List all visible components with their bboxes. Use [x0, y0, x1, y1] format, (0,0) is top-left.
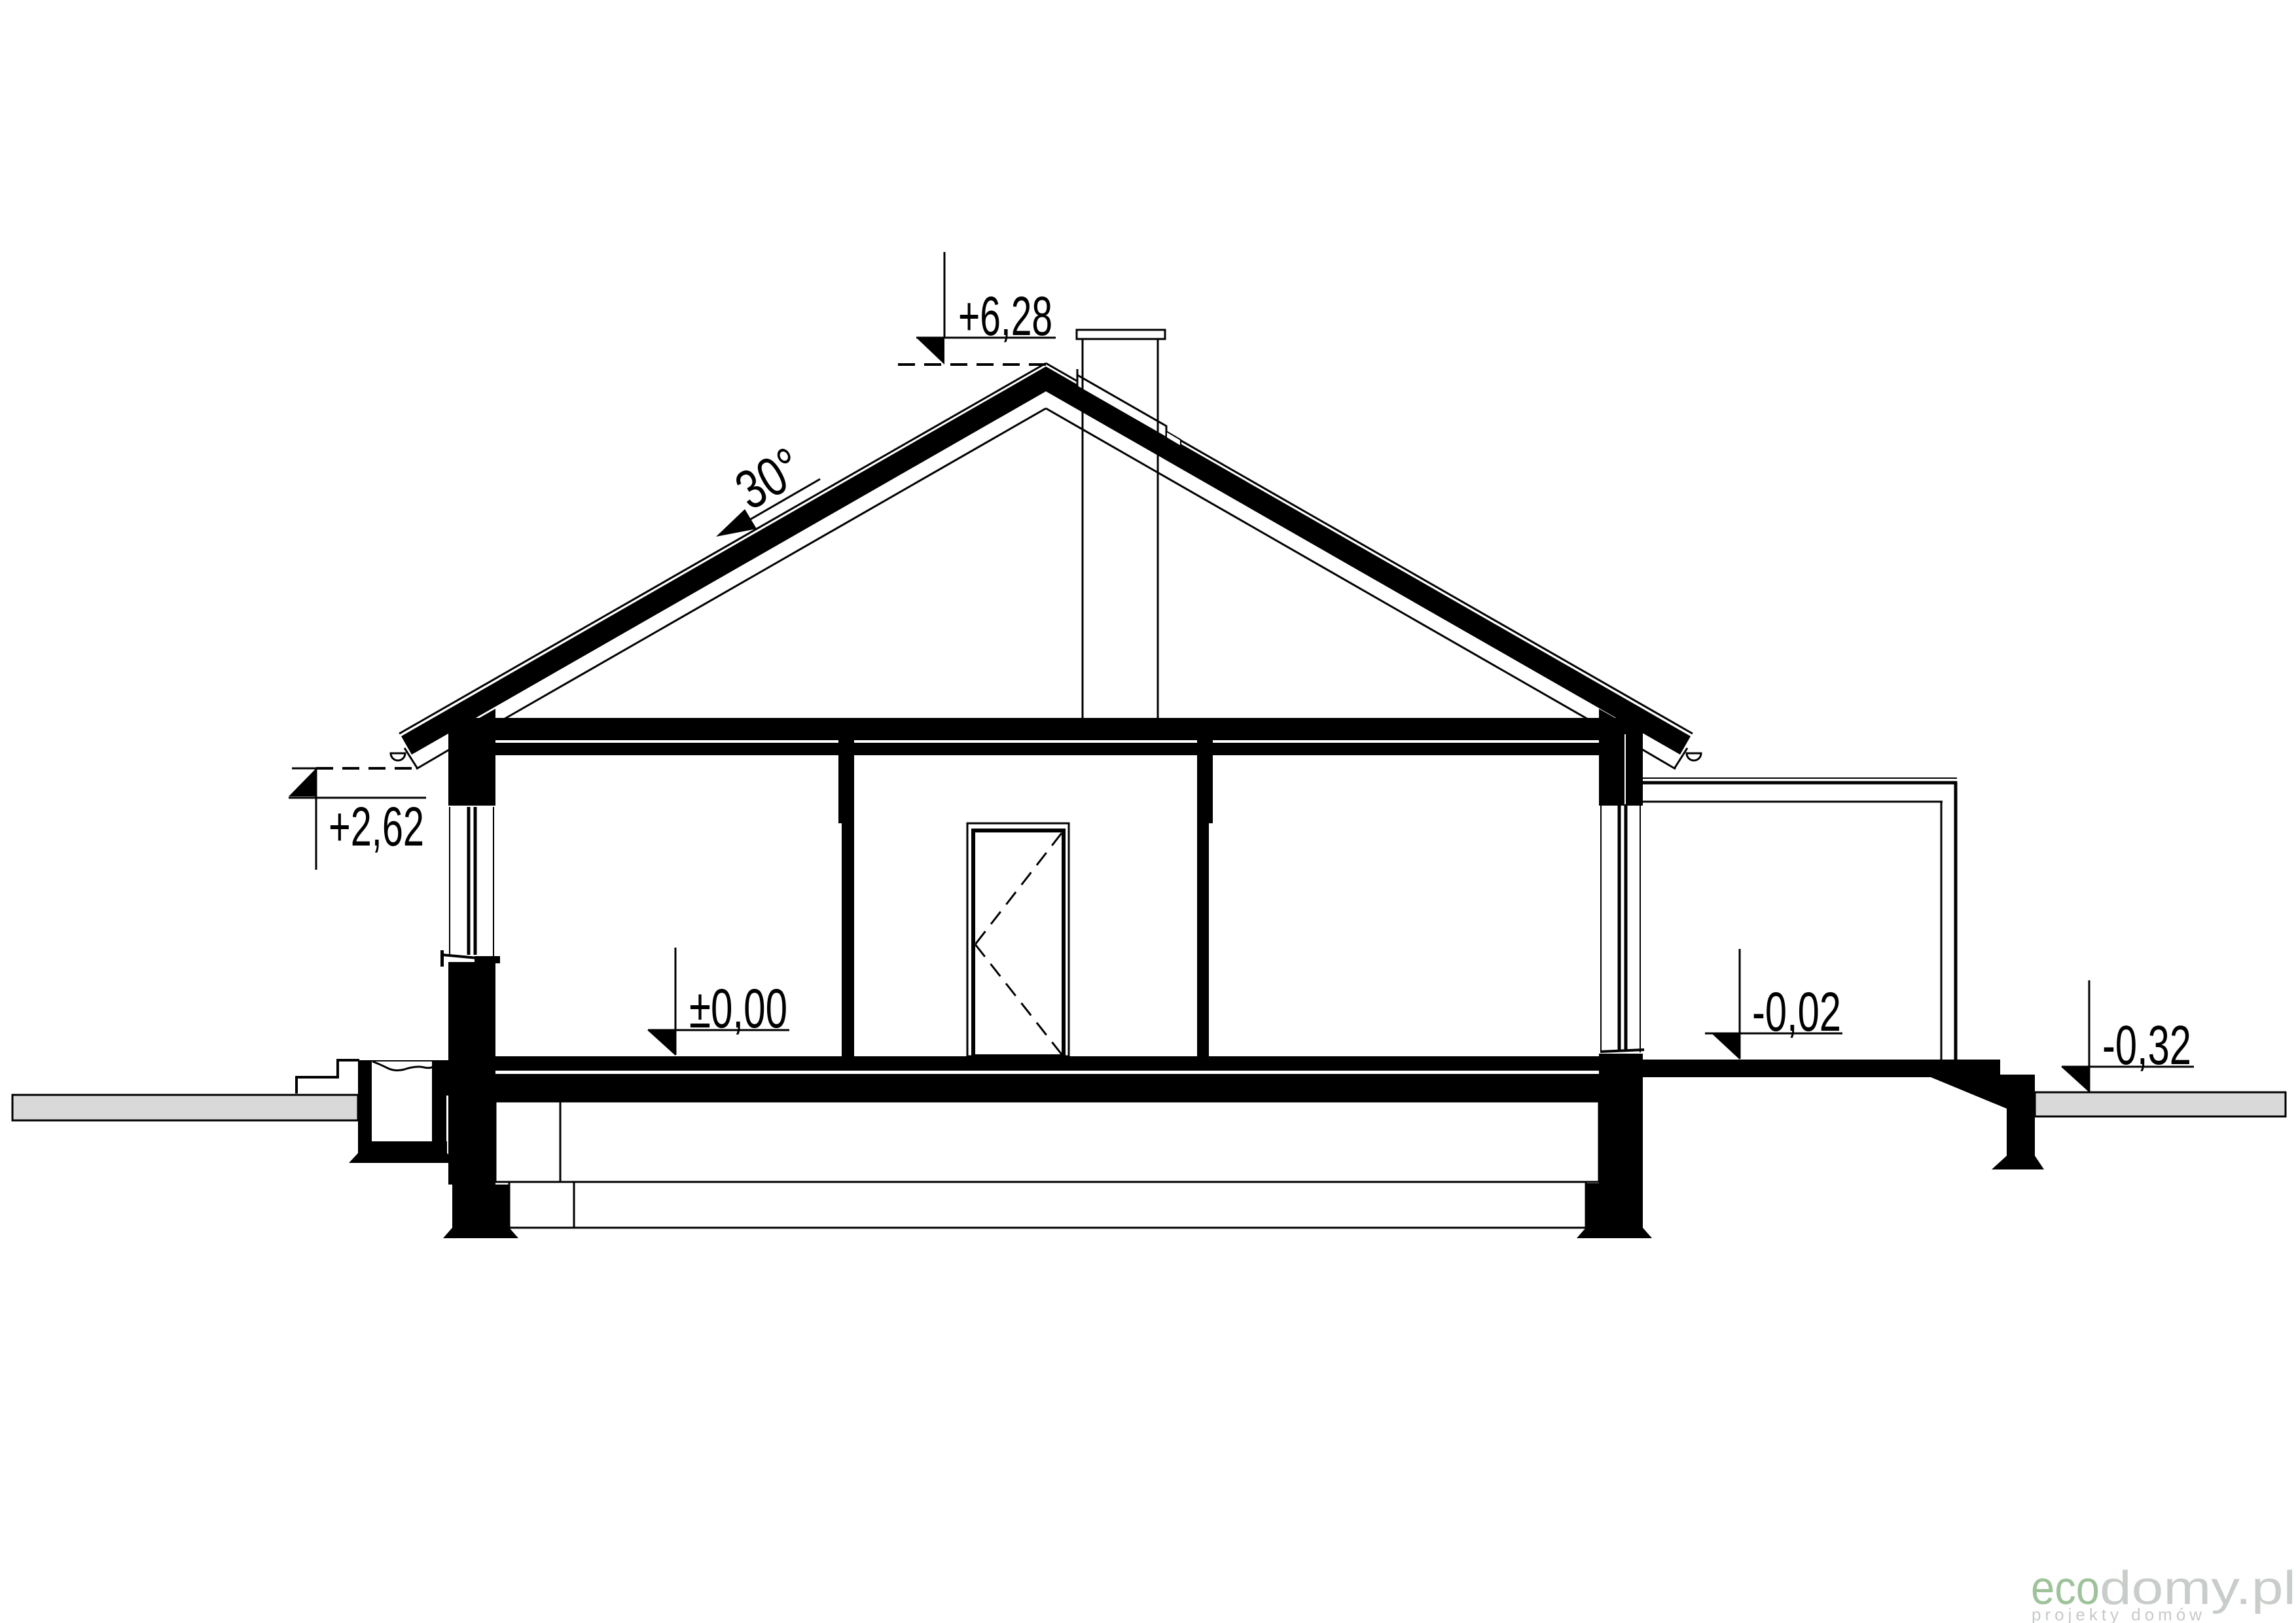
svg-text:projekty domów: projekty domów [2032, 1605, 2206, 1623]
svg-text:+2,62: +2,62 [329, 796, 424, 857]
svg-text:-0,32: -0,32 [2102, 1014, 2191, 1076]
svg-text:-0,02: -0,02 [1752, 981, 1841, 1043]
svg-text:±0,00: ±0,00 [689, 978, 787, 1039]
svg-text:+6,28: +6,28 [958, 285, 1052, 347]
